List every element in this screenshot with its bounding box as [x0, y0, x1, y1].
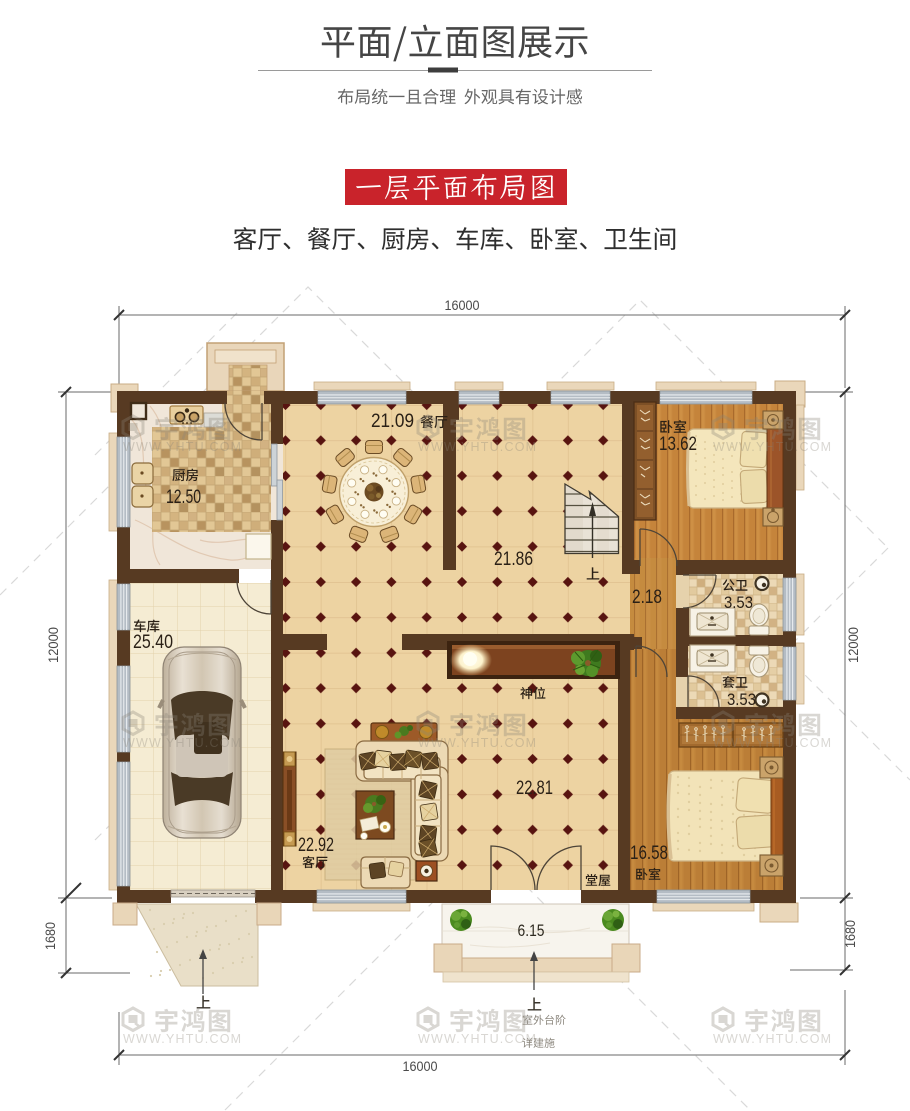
- svg-text:1680: 1680: [842, 920, 858, 948]
- svg-text:6.15: 6.15: [518, 921, 545, 940]
- svg-text:16.58: 16.58: [630, 843, 668, 864]
- svg-text:2.18: 2.18: [632, 587, 662, 608]
- svg-text:21.86: 21.86: [494, 549, 533, 570]
- svg-text:13.62: 13.62: [659, 434, 697, 455]
- svg-text:12.50: 12.50: [166, 487, 201, 508]
- svg-text:21.09: 21.09: [371, 411, 414, 432]
- svg-text:3.53: 3.53: [724, 593, 753, 612]
- svg-text:12000: 12000: [845, 627, 861, 663]
- svg-text:16000: 16000: [445, 297, 480, 313]
- svg-text:16000: 16000: [403, 1058, 438, 1074]
- svg-text:1680: 1680: [42, 922, 58, 950]
- svg-text:22.81: 22.81: [516, 778, 553, 799]
- svg-text:3.53: 3.53: [727, 690, 756, 709]
- svg-text:25.40: 25.40: [133, 632, 173, 653]
- svg-text:12000: 12000: [45, 627, 61, 663]
- svg-text:22.92: 22.92: [298, 835, 334, 856]
